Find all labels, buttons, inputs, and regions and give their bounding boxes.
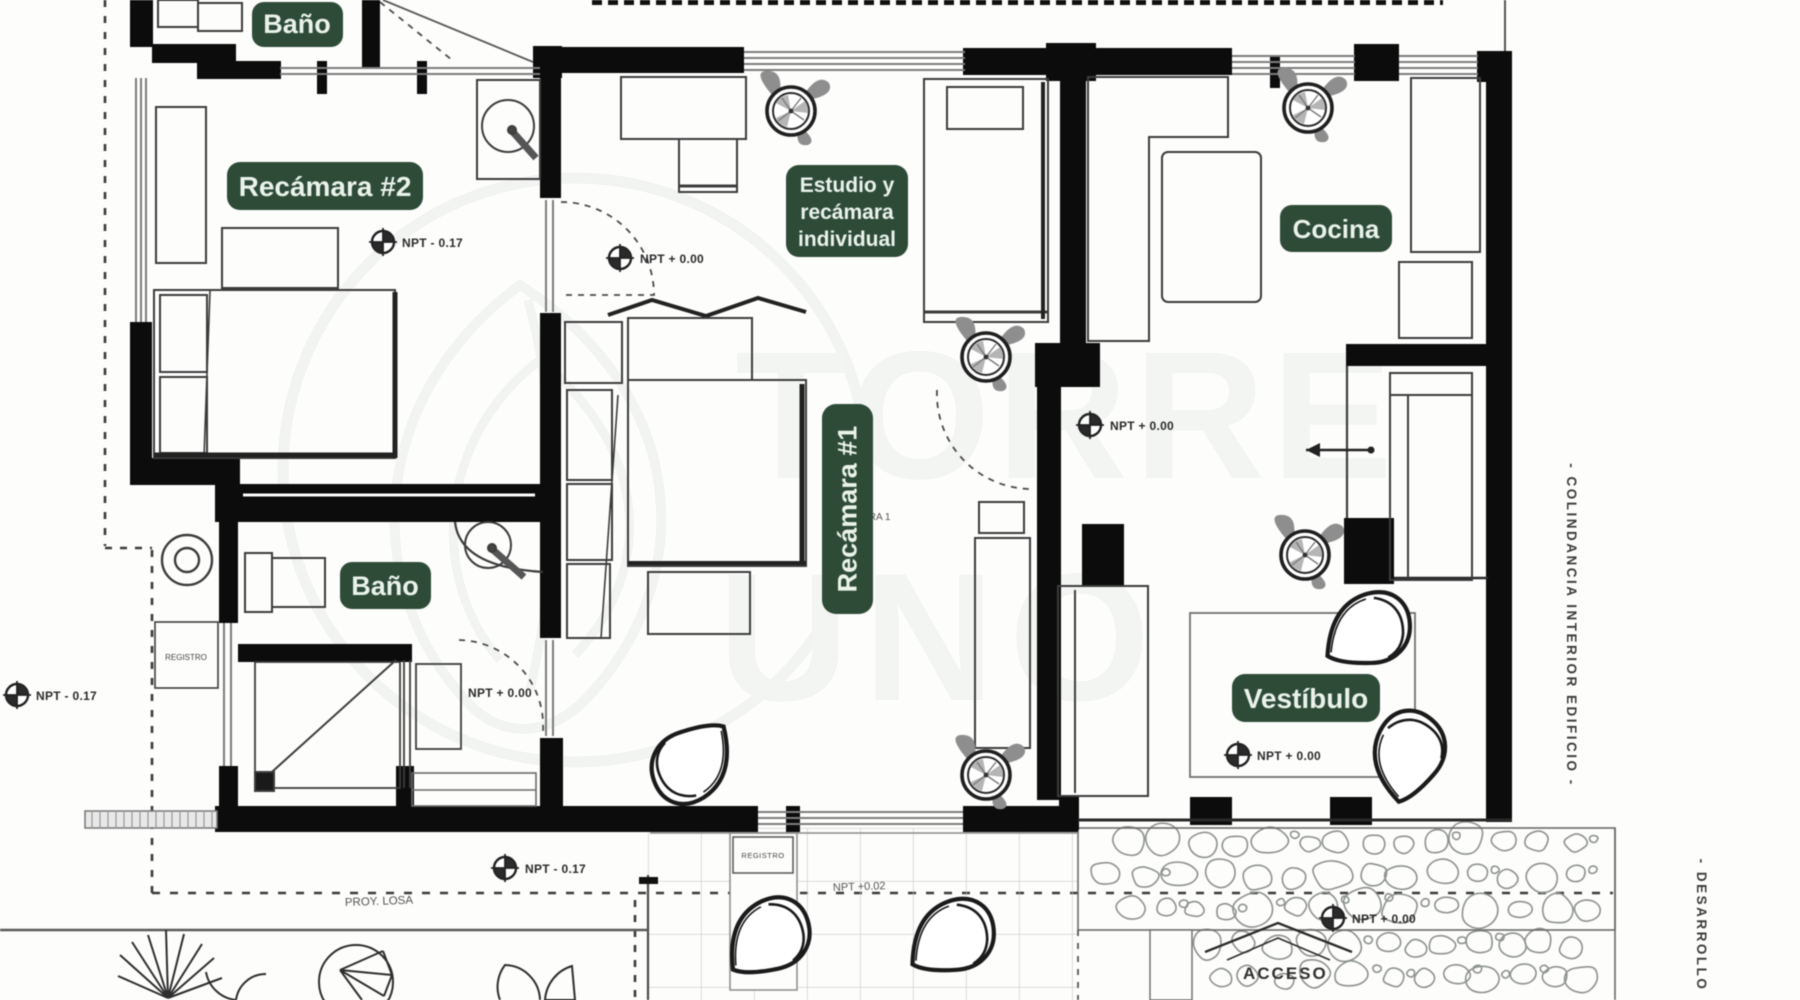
svg-text:Baño: Baño: [263, 9, 331, 39]
svg-text:Estudio y: Estudio y: [800, 174, 895, 197]
svg-text:- DESARROLLO: - DESARROLLO: [1694, 859, 1709, 992]
svg-text:NPT + 0.00: NPT + 0.00: [1352, 912, 1416, 926]
svg-text:ACCESO: ACCESO: [1243, 964, 1328, 983]
svg-text:NPT - 0.17: NPT - 0.17: [402, 236, 463, 250]
svg-text:Recámara #2: Recámara #2: [239, 171, 412, 202]
svg-text:NPT - 0.17: NPT - 0.17: [36, 689, 97, 703]
svg-text:Vestíbulo: Vestíbulo: [1244, 683, 1368, 714]
svg-text:NPT + 0.00: NPT + 0.00: [640, 252, 704, 266]
svg-text:NPT +0.02: NPT +0.02: [833, 880, 886, 894]
svg-text:NPT + 0.00: NPT + 0.00: [468, 686, 532, 700]
svg-text:PROY. LOSA: PROY. LOSA: [345, 895, 414, 909]
svg-text:Cocina: Cocina: [1293, 214, 1380, 244]
svg-text:Recámara #1: Recámara #1: [833, 426, 863, 593]
svg-text:REGISTRO: REGISTRO: [741, 851, 784, 860]
svg-text:REGISTRO: REGISTRO: [165, 653, 207, 662]
svg-text:Baño: Baño: [351, 571, 419, 601]
svg-text:NPT - 0.17: NPT - 0.17: [525, 862, 586, 876]
svg-text:recámara: recámara: [800, 201, 894, 224]
svg-text:NPT + 0.00: NPT + 0.00: [1110, 419, 1174, 433]
svg-text:NPT + 0.00: NPT + 0.00: [1257, 749, 1321, 763]
svg-text:individual: individual: [798, 228, 896, 251]
svg-text:- COLINDANCIA INTERIOR EDIFICI: - COLINDANCIA INTERIOR EDIFICIO -: [1564, 463, 1579, 787]
